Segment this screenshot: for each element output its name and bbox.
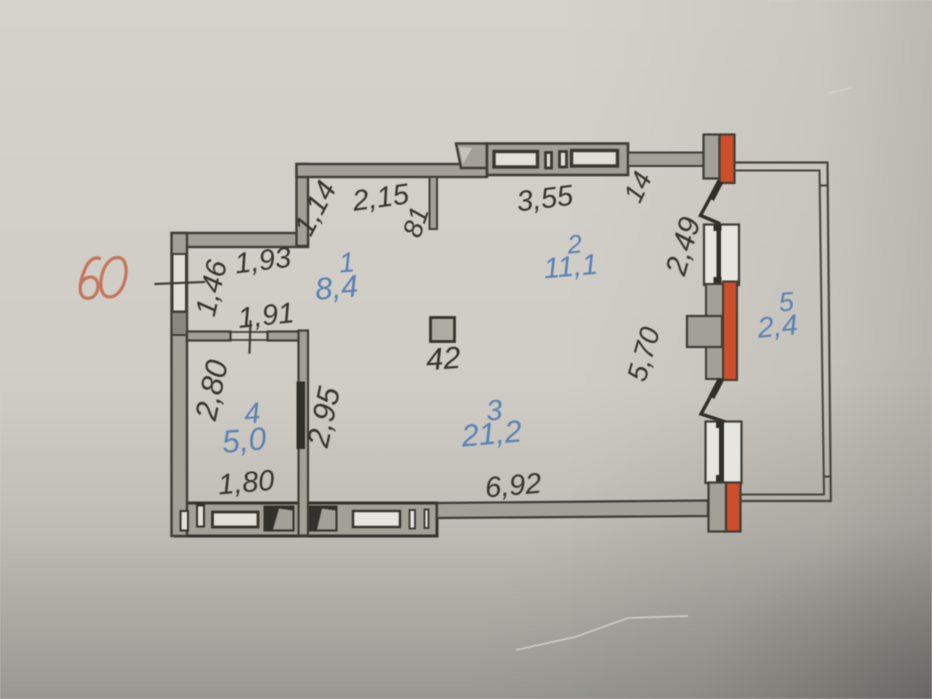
svg-text:1,93: 1,93: [233, 242, 293, 281]
svg-text:1,91: 1,91: [236, 297, 295, 335]
svg-text:1,80: 1,80: [217, 465, 276, 502]
svg-text:6,92: 6,92: [484, 468, 543, 505]
svg-text:2,4: 2,4: [755, 309, 799, 344]
svg-text:8,4: 8,4: [314, 268, 360, 307]
svg-text:11,1: 11,1: [542, 249, 599, 286]
svg-text:42: 42: [425, 340, 462, 377]
svg-text:21,2: 21,2: [459, 413, 523, 453]
svg-text:5,0: 5,0: [220, 420, 268, 460]
